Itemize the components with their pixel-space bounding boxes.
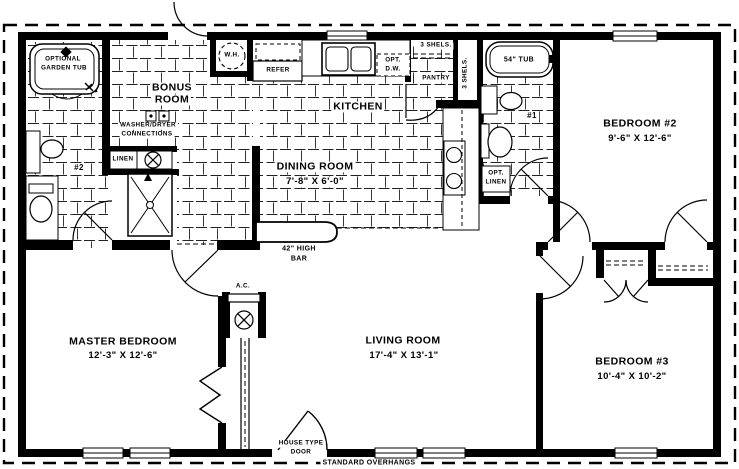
closet-rods xyxy=(606,261,708,270)
bonus-room-label-1: BONUS xyxy=(150,82,194,93)
linen-label: LINEN xyxy=(113,157,134,164)
door-master-bifold xyxy=(200,367,222,423)
door-bedroom3-closet-left xyxy=(604,280,626,302)
floor-plan-page: OPTIONAL GARDEN TUB BONUS ROOM W.H. WASH… xyxy=(0,0,739,469)
bedroom3-dims: 10'-4" X 10'-2" xyxy=(597,372,666,382)
bedroom2-label: BEDROOM #2 xyxy=(603,118,676,129)
high-bar xyxy=(256,222,337,242)
bath1-tub-label: 54" TUB xyxy=(504,56,534,63)
pantry-label: PANTRY xyxy=(420,76,452,83)
door-master-entry xyxy=(172,250,218,296)
door-bedroom3-entry xyxy=(540,256,583,299)
ac-label: A.C. xyxy=(236,284,250,291)
bedroom3-label: BEDROOM #3 xyxy=(595,356,668,367)
kitchen-sink xyxy=(322,43,375,75)
garden-tub-label-2: GARDEN TUB xyxy=(41,66,87,73)
bath2-number-label: #2 xyxy=(72,164,86,172)
dining-room-dims: 7'-8" X 6'-0" xyxy=(284,177,346,187)
door-bonus-entry xyxy=(174,2,208,36)
floor-plan-drawing xyxy=(0,0,739,469)
kitchen-counter-east xyxy=(443,108,479,230)
bedroom2-dims: 9'-6" X 12'-6" xyxy=(608,134,672,144)
ac-closet xyxy=(228,294,260,338)
bar-label-2: BAR xyxy=(291,255,307,262)
door-bedroom3-closet-right xyxy=(626,280,648,302)
living-room-dims: 17'-4" X 13'-1" xyxy=(369,351,438,361)
master-closet xyxy=(241,338,249,449)
garden-tub-label-1: OPTIONAL xyxy=(45,57,81,64)
linen-light-box xyxy=(137,151,172,169)
pantry-shelves-top-label: 3 SHELS. xyxy=(418,43,453,50)
pantry-shelves-side-label: 3 SHELS. xyxy=(463,55,470,90)
master-bedroom-label: MASTER BEDROOM xyxy=(69,336,177,347)
house-door-label-2: DOOR xyxy=(289,450,314,457)
bonus-room-label-2: ROOM xyxy=(153,94,191,105)
water-heater-label: W.H. xyxy=(224,53,239,60)
kitchen-label: KITCHEN xyxy=(331,101,384,112)
house-door-label-1: HOUSE TYPE xyxy=(277,441,326,448)
bath2-toilet xyxy=(26,176,58,240)
window-master-2 xyxy=(130,448,170,458)
window-bedroom3 xyxy=(615,448,657,458)
overhangs-label: STANDARD OVERHANGS xyxy=(320,459,417,466)
opt-linen-label-2: LINEN xyxy=(486,180,507,187)
bath1-number-label: #1 xyxy=(525,112,539,120)
dining-room-label: DINING ROOM xyxy=(275,161,356,172)
washer-dryer-label-1: WASHER/DRYER xyxy=(118,123,178,130)
shower xyxy=(128,174,172,236)
dishwasher-label-2: D.W. xyxy=(385,67,400,74)
refrigerator-label: REFER xyxy=(266,68,289,75)
washer-dryer-label-2: CONNECTIONS xyxy=(120,132,175,139)
bar-label-1: 42" HIGH xyxy=(282,245,316,252)
window-living-2 xyxy=(423,448,465,458)
door-bedroom2-closet xyxy=(665,200,707,242)
refrigerator xyxy=(253,44,302,81)
window-bedroom2 xyxy=(613,31,657,41)
window-living-1 xyxy=(375,448,417,458)
window-master-1 xyxy=(83,448,123,458)
living-room-label: LIVING ROOM xyxy=(366,335,441,346)
opt-linen-label-1: OPT. xyxy=(488,171,504,178)
master-bedroom-dims: 12'-3" X 12'-6" xyxy=(88,351,157,361)
dishwasher-label-1: OPT. xyxy=(385,58,401,65)
